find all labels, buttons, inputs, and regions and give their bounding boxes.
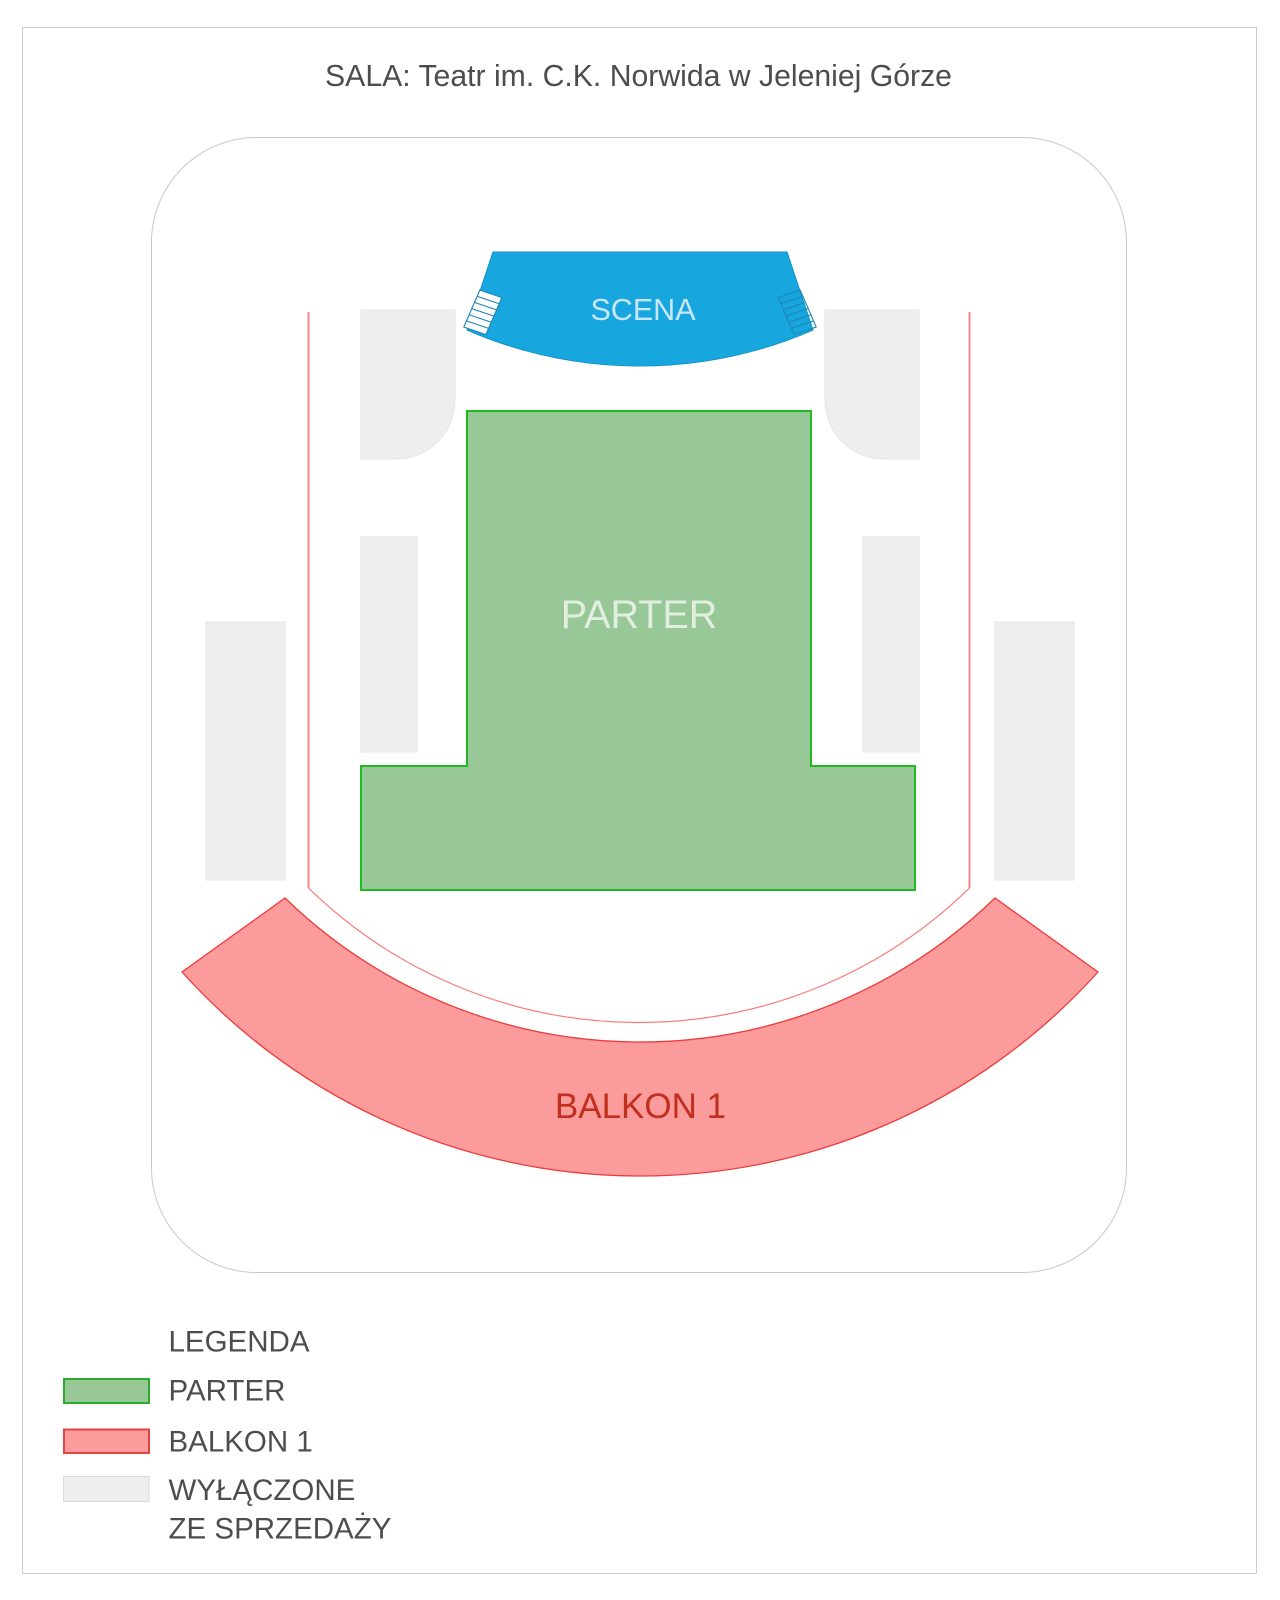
svg-text:SALA: Teatr im. C.K. Norwida w: SALA: Teatr im. C.K. Norwida w Jeleniej … (325, 60, 952, 93)
svg-text:PARTER: PARTER (561, 593, 718, 637)
svg-text:BALKON 1: BALKON 1 (169, 1426, 313, 1459)
svg-text:ZE SPRZEDAŻY: ZE SPRZEDAŻY (169, 1513, 392, 1546)
svg-text:WYŁĄCZONE: WYŁĄCZONE (169, 1474, 356, 1507)
svg-text:LEGENDA: LEGENDA (169, 1326, 310, 1359)
svg-text:PARTER: PARTER (169, 1375, 286, 1408)
svg-text:SCENA: SCENA (590, 293, 696, 327)
svg-text:BALKON 1: BALKON 1 (555, 1087, 726, 1126)
